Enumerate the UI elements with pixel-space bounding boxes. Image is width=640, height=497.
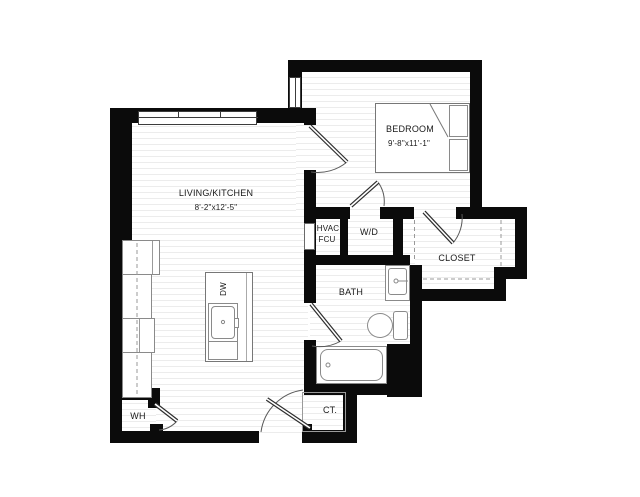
closet-door-leaf-core [424, 212, 453, 243]
wd-label: W/D [360, 227, 378, 237]
hvac-label-line2: FCU [318, 235, 335, 245]
tub-drain [326, 363, 330, 367]
hvac-label-line1: HVAC [317, 224, 339, 234]
living-kitchen-dims: 8'-2"x12'-5" [195, 203, 238, 213]
closet-label: CLOSET [438, 253, 475, 263]
bath-label: BATH [339, 287, 363, 297]
wh-label: WH [130, 411, 145, 421]
wd-door-arc [378, 182, 384, 206]
floor-plan: LIVING/KITCHEN 8'-2"x12'-5" BEDROOM 9'-8… [0, 0, 640, 497]
island-sink-dot [221, 320, 224, 323]
wh-door-arc [159, 421, 177, 430]
closet-door-arc [453, 214, 462, 243]
bath-door-arc [312, 341, 341, 347]
bedroom-door-leaf-core [310, 126, 347, 162]
bath-sink-faucet-dot [394, 279, 398, 283]
bedroom-dims: 9'-8"x11'-1" [388, 139, 430, 149]
bedroom-door-arc [311, 162, 347, 172]
entry-door-leaf-core [267, 399, 310, 428]
wd-door-leaf-core [351, 182, 378, 206]
doors-symbols-layer [0, 0, 640, 497]
ct-label: CT. [323, 405, 337, 415]
bath-door-leaf-core [311, 304, 341, 341]
wh-door-leaf-core [155, 404, 177, 421]
living-kitchen-label: LIVING/KITCHEN [179, 188, 253, 198]
dw-label: DW [219, 282, 229, 296]
bedroom-label: BEDROOM [386, 124, 434, 134]
